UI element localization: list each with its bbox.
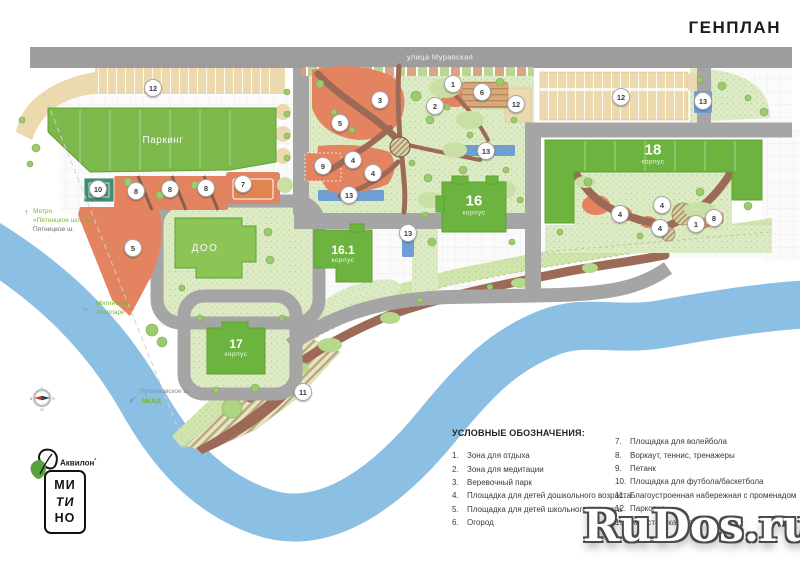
street-name-label: улица Муравская (407, 53, 473, 62)
legend: УСЛОВНЫЕ ОБОЗНАЧЕНИЯ: 1.Зона для отдыха2… (452, 428, 585, 438)
genplan-page: ГЕНПЛАН улица Муравская Паркинг ДОО 16 к… (0, 0, 800, 565)
logo-district-line: ТИ (55, 494, 76, 511)
putilkovskoe-label: Путилковское ш. (140, 388, 190, 397)
legend-item-number: 11. (615, 491, 630, 500)
mkad-arrow-icon: ↙ (129, 394, 137, 405)
legend-item-text: Петанк (630, 464, 656, 473)
legend-item-number: 1. (452, 451, 467, 460)
page-title: ГЕНПЛАН (689, 18, 781, 38)
legend-item-number: 10. (615, 477, 630, 486)
svg-text:з: з (30, 396, 32, 401)
building-18-label: 18 корпус (641, 143, 664, 166)
logo-district-box: МИТИНО (44, 470, 86, 534)
legend-item-text: Огород (467, 518, 494, 527)
legend-item-text: Веревочный парк (467, 478, 532, 487)
building-doo-label: ДОО (192, 238, 219, 256)
legend-item-number: 9. (615, 464, 630, 473)
legend-item: 2.Зона для медитации (452, 462, 631, 475)
building-16-1-label: 16.1 корпус (331, 244, 354, 264)
building-16-label: 16 корпус (462, 194, 485, 217)
legend-item-number: 8. (615, 451, 630, 460)
logo-district-line: НО (55, 510, 76, 527)
legend-item-number: 4. (452, 491, 467, 500)
legend-item-number: 2. (452, 465, 467, 474)
legend-item-number: 5. (452, 505, 467, 514)
legend-item-text: Воркаут, теннис, тренажеры (630, 451, 735, 460)
legend-item-text: Зона для медитации (467, 465, 544, 474)
legend-item: 10.Площадка для футбола/баскетбола (615, 475, 796, 488)
legend-item-text: Зона для отдыха (467, 451, 530, 460)
svg-text:в: в (52, 396, 55, 401)
svg-text:ю: ю (40, 407, 44, 412)
legend-item: 3.Веревочный парк (452, 476, 631, 489)
legend-item-text: Площадка для футбола/баскетбола (630, 477, 764, 486)
logo-district-line: МИ (54, 477, 75, 494)
compass-icon: с ю з в (29, 384, 55, 412)
lesopark-label: Митинский лесопарк (96, 300, 129, 318)
metro-label: Метро «Пятницкое шоссе» (33, 208, 93, 226)
building-parking-label: Паркинг (143, 130, 184, 148)
legend-title: УСЛОВНЫЕ ОБОЗНАЧЕНИЯ: (452, 428, 585, 438)
legend-item: 11.Благоустроенная набережная с променад… (615, 489, 796, 502)
metro-arrow-icon: ↑ (24, 207, 29, 217)
watermark: RuDos.ru (583, 501, 800, 552)
mkad-label: МКАД (142, 398, 161, 407)
legend-item: 9.Петанк (615, 462, 796, 475)
logo-brand: Аквилон° (60, 458, 96, 468)
pyatnitskoe-label: Пятницкое ш. (33, 226, 74, 235)
legend-item: 8.Воркаут, теннис, тренажеры (615, 448, 796, 461)
legend-item: 7.Площадка для волейбола (615, 435, 796, 448)
legend-item-text: Благоустроенная набережная с променадом (630, 491, 796, 500)
legend-item: 1.Зона для отдыха (452, 449, 631, 462)
legend-item-text: Площадка для волейбола (630, 437, 727, 446)
legend-item-number: 7. (615, 437, 630, 446)
legend-item-number: 3. (452, 478, 467, 487)
building-17-label: 17 корпус (224, 338, 247, 358)
legend-item-number: 6. (452, 518, 467, 527)
legend-item-text: Площадка для детей дошкольного возраста (467, 491, 631, 500)
